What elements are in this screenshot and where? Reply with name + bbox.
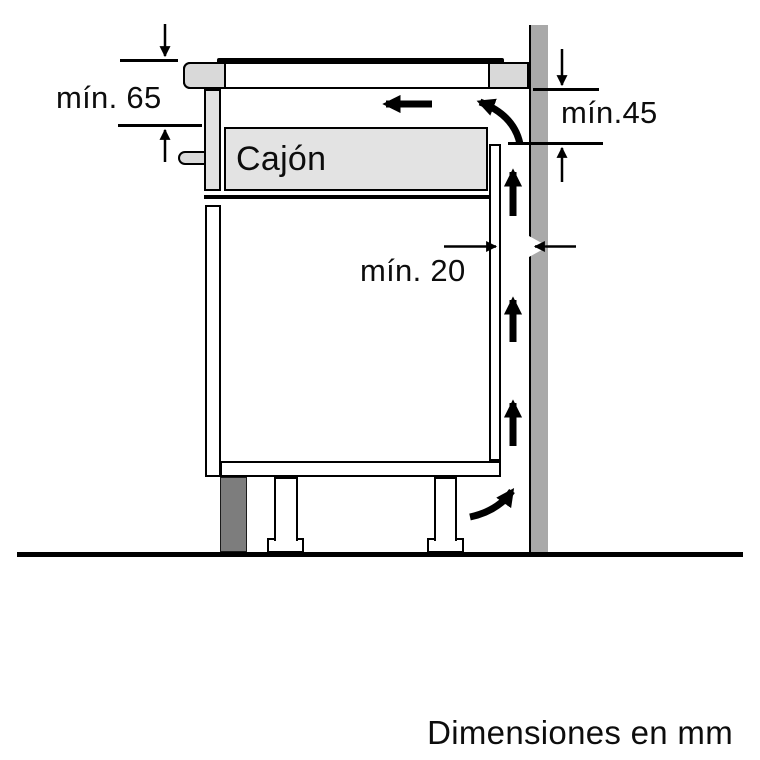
shelf-line (204, 195, 501, 199)
wall (529, 25, 548, 553)
countertop (183, 62, 529, 89)
plinth (220, 477, 247, 552)
cabinet-bottom-panel (220, 461, 501, 477)
leg-shaft (274, 477, 298, 541)
drawer-label: Cajón (226, 142, 326, 176)
units-note: Dimensiones en mm (427, 714, 733, 752)
drawer-box: Cajón (224, 127, 488, 191)
countertop-left-section (183, 62, 226, 89)
countertop-right-section (488, 62, 529, 89)
hob-glass-top (217, 58, 504, 64)
cabinet-door-panel (205, 205, 221, 477)
drawer-handle (178, 151, 207, 165)
dim-label-min-65: mín. 65 (56, 81, 161, 115)
leg-shaft (434, 477, 457, 541)
airflow-arrow-curve-bottom-icon (470, 491, 512, 517)
dim-label-min-20: mín. 20 (360, 254, 465, 288)
cabinet-rear-panel (489, 144, 501, 461)
dim-label-min-45: mín.45 (561, 96, 658, 130)
installation-diagram: Cajón mín. 65 mín.45 mín. 20 Dimensiones… (0, 0, 760, 760)
drawer-front-panel (204, 89, 221, 191)
